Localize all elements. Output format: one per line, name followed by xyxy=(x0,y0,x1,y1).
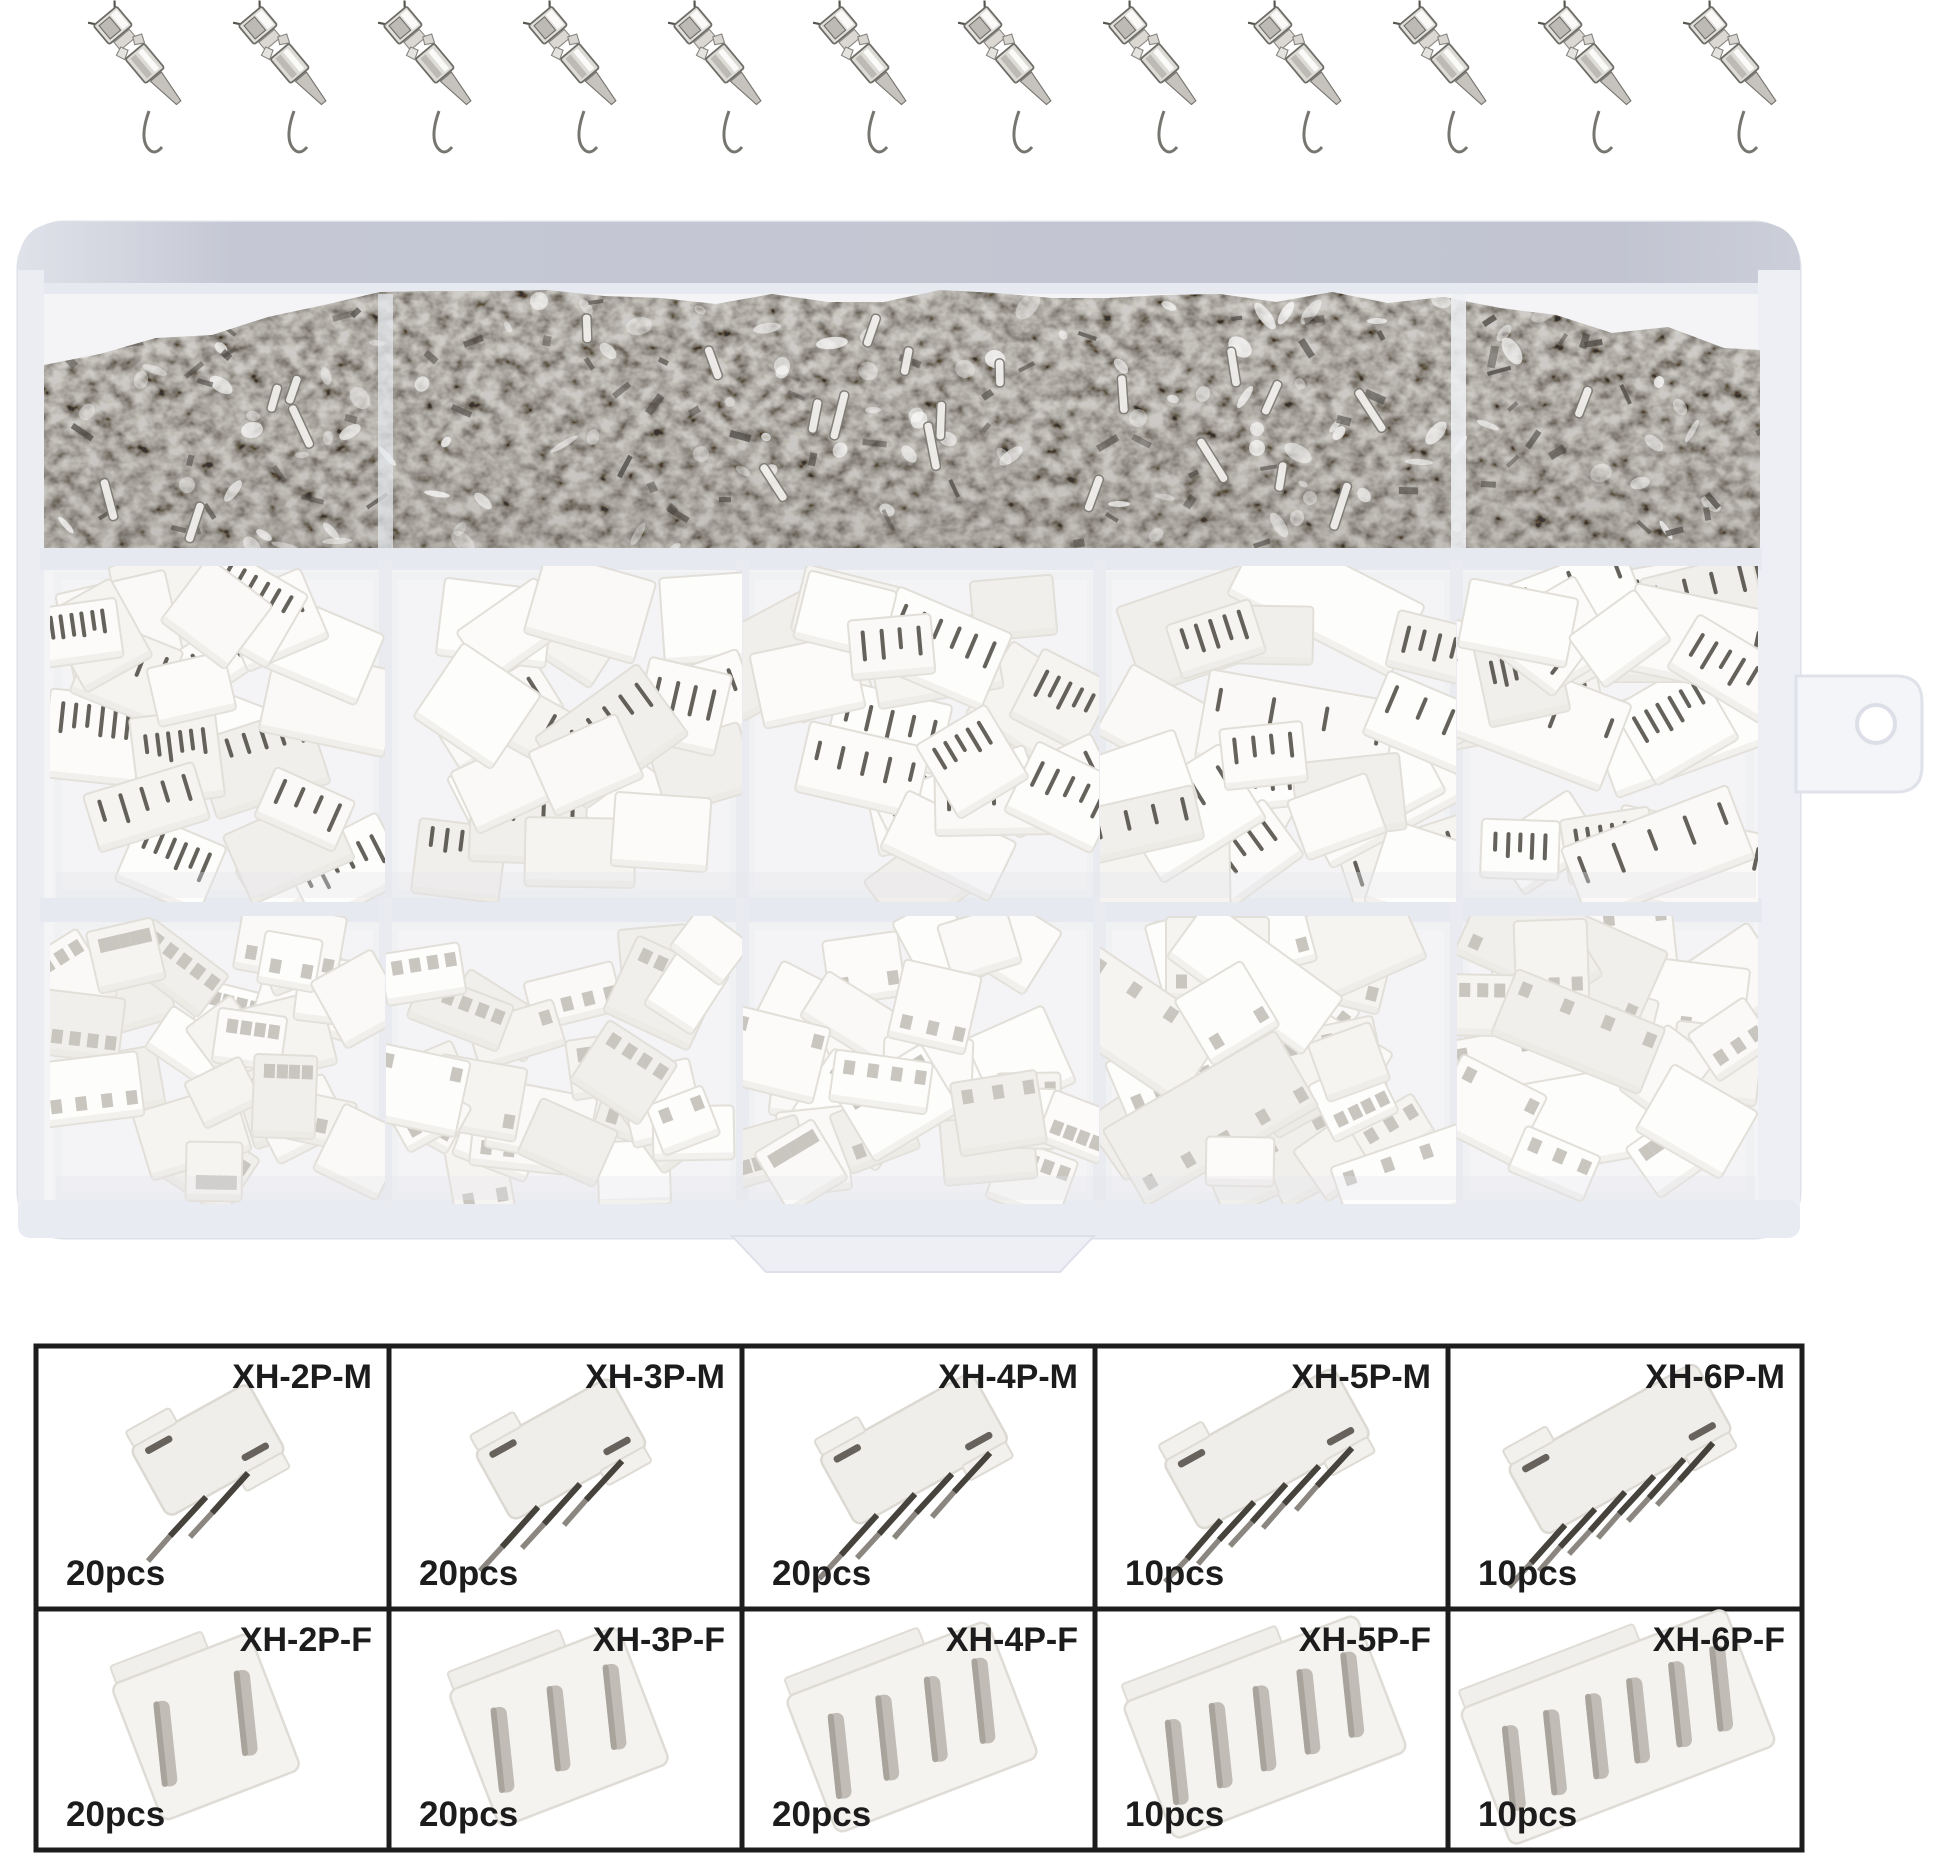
svg-text:XH-6P-F: XH-6P-F xyxy=(1653,1621,1785,1659)
svg-text:XH-4P-F: XH-4P-F xyxy=(946,1621,1078,1659)
svg-text:XH-3P-F: XH-3P-F xyxy=(593,1621,725,1659)
svg-text:XH-2P-M: XH-2P-M xyxy=(232,1358,372,1396)
svg-text:10pcs: 10pcs xyxy=(1125,1554,1224,1593)
svg-text:20pcs: 20pcs xyxy=(66,1554,165,1593)
svg-text:XH-6P-M: XH-6P-M xyxy=(1645,1358,1785,1396)
svg-text:20pcs: 20pcs xyxy=(772,1795,871,1834)
svg-text:XH-4P-M: XH-4P-M xyxy=(938,1358,1078,1396)
svg-text:10pcs: 10pcs xyxy=(1478,1554,1577,1593)
svg-text:XH-5P-M: XH-5P-M xyxy=(1291,1358,1431,1396)
svg-text:20pcs: 20pcs xyxy=(419,1554,518,1593)
svg-text:20pcs: 20pcs xyxy=(66,1795,165,1834)
svg-text:XH-3P-M: XH-3P-M xyxy=(585,1358,725,1396)
svg-text:XH-5P-F: XH-5P-F xyxy=(1299,1621,1431,1659)
svg-text:20pcs: 20pcs xyxy=(419,1795,518,1834)
svg-text:20pcs: 20pcs xyxy=(772,1554,871,1593)
svg-text:10pcs: 10pcs xyxy=(1125,1795,1224,1834)
svg-text:10pcs: 10pcs xyxy=(1478,1795,1577,1834)
svg-text:XH-2P-F: XH-2P-F xyxy=(240,1621,372,1659)
